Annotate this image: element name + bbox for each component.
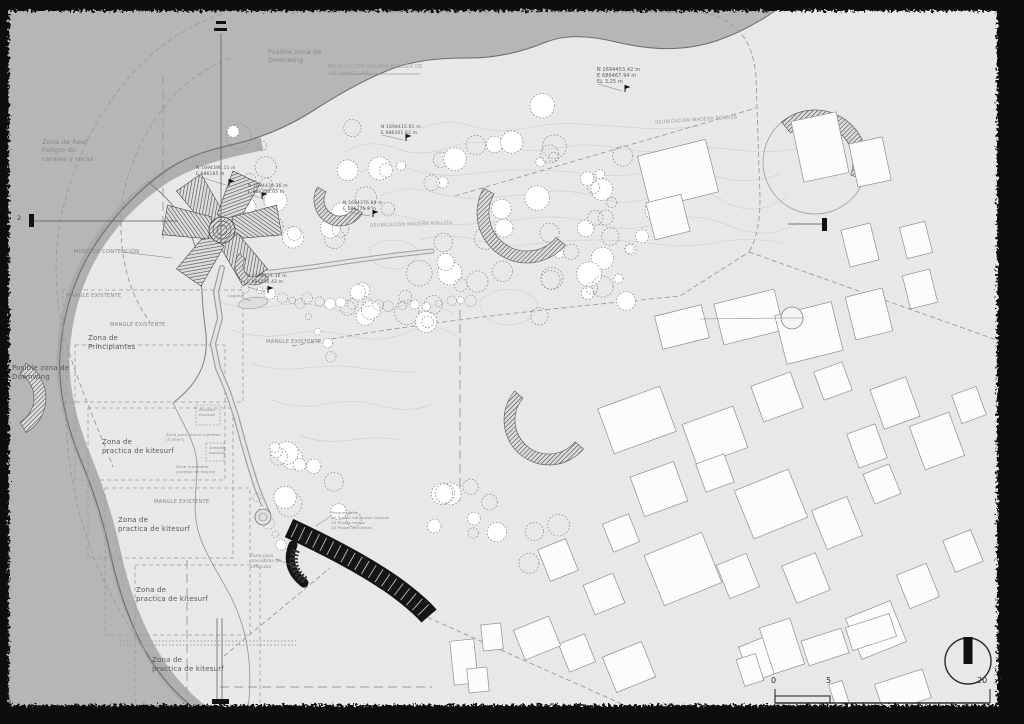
section-tick [216, 21, 226, 24]
tree [492, 199, 512, 219]
tree [536, 158, 545, 167]
tree [379, 164, 393, 178]
tree [617, 292, 636, 311]
tree [350, 285, 365, 300]
tree [306, 459, 321, 474]
tree [580, 172, 594, 186]
building [467, 667, 489, 693]
tree [422, 316, 434, 328]
tree [468, 512, 481, 525]
tree [530, 93, 554, 117]
border-edge [0, 705, 1024, 724]
tree [274, 486, 296, 508]
building [481, 623, 504, 651]
mangrove-tree [457, 297, 464, 304]
tree [614, 274, 623, 283]
mangrove-tree [325, 298, 336, 309]
tree [427, 519, 441, 533]
border-edge [997, 0, 1024, 724]
mangrove-tree [323, 339, 332, 348]
site-plan-canvas: 2 0 5 20 Posible zona de DownwingREUBICA… [0, 0, 1024, 724]
mangrove-tree [264, 288, 275, 299]
north-arrow-needle [964, 637, 973, 664]
tree [486, 136, 502, 152]
tree [330, 504, 346, 520]
mangrove-tree [276, 540, 287, 551]
section-cap [212, 699, 229, 704]
mangrove-tree [410, 300, 419, 309]
tree [444, 148, 467, 171]
tree [501, 131, 523, 153]
mangrove-tree [336, 297, 346, 307]
tree [577, 220, 594, 237]
tree [270, 442, 280, 452]
tree [525, 186, 550, 211]
plaza-circle [255, 509, 271, 525]
tree [437, 253, 454, 270]
tree [591, 179, 613, 201]
section-bar-left [29, 214, 34, 227]
tree [337, 160, 358, 181]
tree [595, 169, 604, 178]
border-edge [0, 0, 9, 724]
tree [487, 522, 506, 541]
tree [635, 230, 648, 243]
mangrove-tree [422, 303, 430, 311]
mangrove-tree [314, 328, 321, 335]
tree [287, 227, 301, 241]
site-plan-drawing [0, 0, 1024, 724]
section-bar-right [822, 218, 827, 231]
tree [227, 126, 239, 138]
section-tick [214, 28, 227, 31]
tree [495, 219, 513, 237]
tree [396, 161, 405, 170]
tree [431, 483, 452, 504]
border-edge [0, 0, 1024, 11]
